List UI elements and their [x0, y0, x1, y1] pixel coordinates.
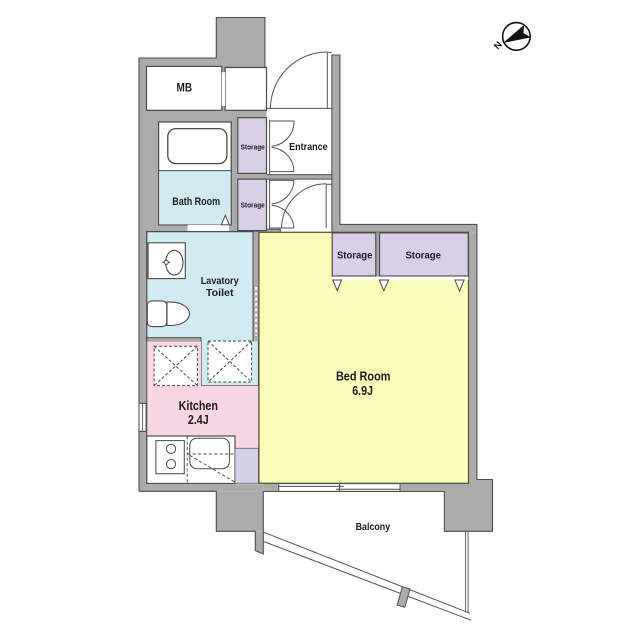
svg-text:Storage: Storage	[241, 200, 265, 209]
svg-text:2.4J: 2.4J	[188, 413, 209, 427]
svg-text:Balcony: Balcony	[356, 522, 391, 533]
svg-text:Toilet: Toilet	[206, 288, 234, 299]
svg-text:Bath Room: Bath Room	[172, 196, 220, 208]
svg-text:6.9J: 6.9J	[352, 383, 373, 398]
svg-text:Lavatory: Lavatory	[201, 276, 239, 287]
svg-text:Storage: Storage	[337, 251, 373, 262]
svg-text:Entrance: Entrance	[289, 142, 328, 153]
svg-text:MB: MB	[177, 80, 193, 94]
svg-text:Kitchen: Kitchen	[179, 399, 218, 413]
svg-text:Bed Room: Bed Room	[336, 368, 391, 383]
svg-text:Storage: Storage	[241, 142, 265, 151]
svg-text:Storage: Storage	[405, 251, 441, 262]
